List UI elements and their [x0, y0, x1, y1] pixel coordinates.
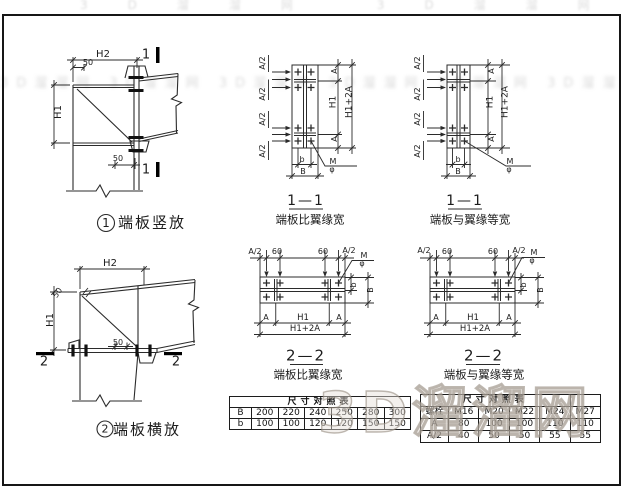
drawing-sheet: 3D溜溜网 3D溜溜网 3D溜溜网 3D溜溜网 3D溜溜网 3D溜溜网 3D溜溜… — [0, 0, 624, 500]
cell-A2-5: 55 — [570, 431, 600, 443]
section-1-1-wide-subtitle: 端板比翼缘宽 — [276, 214, 345, 226]
dim-label-B: B — [455, 168, 461, 176]
dim-label-a: A — [433, 314, 438, 322]
detail-1-linework — [66, 66, 182, 197]
cell-A2-3: 50 — [509, 431, 539, 443]
cell-A-5: 110 — [570, 419, 600, 431]
section-mark-1-bottom: 1 — [142, 164, 150, 177]
dim-label-h1-2a: H1+2A — [346, 86, 355, 118]
cell-b-4: 120 — [331, 419, 358, 430]
cell-b-3: 120 — [305, 419, 332, 430]
dim-label-h1: H1 — [46, 313, 56, 327]
cell-bolt-1: M16 — [449, 407, 479, 419]
dim-label-a-half: A/2 — [417, 247, 430, 255]
section-mark-2-left: 2 — [40, 356, 48, 369]
cell-A2-1: 40 — [449, 431, 479, 443]
section-cut-bar-1-top — [156, 47, 160, 63]
dim-label-a-half: A/2 — [414, 87, 422, 100]
detail-2-caption: 端板横放 — [113, 423, 181, 438]
dim-label-h1-2a: H1+2A — [502, 86, 511, 118]
dim-label-a-half: A/2 — [342, 247, 355, 255]
section-1-1-equal-title: 1—1 — [446, 194, 484, 208]
bolt-label-dia: φ — [506, 166, 511, 174]
dim-label-h1-2a: H1+2A — [290, 325, 320, 334]
dim-label-a: A — [331, 136, 339, 141]
dim-label-B: B — [300, 168, 306, 176]
dim-label-60: 60 — [318, 248, 328, 256]
dim-label-a-half: A/2 — [414, 56, 422, 69]
cell-bolt-5: M27 — [570, 407, 600, 419]
cell-bolt-3: M22 — [509, 407, 539, 419]
detail-1-caption: 端板竖放 — [118, 216, 186, 231]
size-table: 尺寸对照表 B 200 220 240 250 280 300 b 100 10… — [229, 396, 411, 430]
dim-label-h1: H1 — [297, 314, 309, 323]
dim-label-a-half: A/2 — [414, 112, 422, 125]
dim-label-b: b — [350, 282, 358, 287]
cell-b-2: 100 — [278, 419, 305, 430]
cell-B-6: 300 — [384, 408, 411, 419]
dim-label-a-half: A/2 — [259, 87, 267, 100]
cell-bolt-2: M20 — [479, 407, 509, 419]
cell-B-5: 280 — [358, 408, 385, 419]
row-label-B: B — [230, 408, 252, 419]
dim-label-50: 50 — [113, 155, 123, 163]
section-cut-bar-1-bottom — [156, 162, 160, 177]
table-row: A 80 100 100 110 110 — [421, 419, 601, 431]
dim-label-50: 50 — [83, 59, 93, 67]
table-row: B 200 220 240 250 280 300 — [230, 408, 411, 419]
dim-label-60: 60 — [488, 248, 498, 256]
detail-2-linework — [68, 280, 199, 407]
table-row: b 100 100 120 120 150 150 — [230, 419, 411, 430]
cell-A-2: 100 — [479, 419, 509, 431]
cell-b-6: 150 — [384, 419, 411, 430]
dim-label-50: 50 — [113, 339, 123, 347]
section-mark-2-right: 2 — [172, 356, 180, 369]
dim-label-h2: H2 — [96, 50, 110, 60]
row-label-A: A — [421, 419, 449, 431]
bolt-table-empty-cell — [570, 395, 600, 407]
cell-A2-4: 55 — [540, 431, 570, 443]
cell-B-3: 240 — [305, 408, 332, 419]
detail-2-number: 2 — [102, 424, 109, 435]
cell-A2-2: 50 — [479, 431, 509, 443]
detail-1-dimensions — [51, 47, 160, 232]
cell-A-3: 100 — [509, 419, 539, 431]
dim-label-a-half: A/2 — [512, 247, 525, 255]
section-2-2-wide-subtitle: 端板比翼缘宽 — [274, 369, 343, 381]
dim-label-B: B — [537, 287, 545, 293]
cell-B-4: 250 — [331, 408, 358, 419]
row-label-A-half: A/2 — [421, 431, 449, 443]
bolt-label-dia: φ — [329, 166, 334, 174]
size-table-title: 尺寸对照表 — [230, 397, 411, 408]
dim-label-a: A — [506, 314, 511, 322]
section-2-2-equal-title: 2—2 — [464, 349, 504, 364]
row-label-bolt: 螺栓 — [421, 407, 449, 419]
dim-label-60: 60 — [272, 248, 282, 256]
dim-label-h1: H1 — [487, 96, 496, 109]
cell-A-1: 80 — [449, 419, 479, 431]
dim-label-60: 60 — [442, 248, 452, 256]
dim-label-a-half: A/2 — [414, 144, 422, 157]
section-1-1-equal-subtitle: 端板与翼缘等宽 — [430, 214, 511, 226]
cell-bolt-4: M24 — [540, 407, 570, 419]
section-mark-1-top: 1 — [142, 49, 150, 62]
dim-label-a-half: A/2 — [248, 248, 261, 256]
table-row: A/2 40 50 50 55 55 — [421, 431, 601, 443]
cell-B-1: 200 — [252, 408, 279, 419]
section-2-2-equal-subtitle: 端板与翼缘等宽 — [444, 369, 525, 381]
cell-A-4: 110 — [540, 419, 570, 431]
dim-label-a: A — [263, 314, 268, 322]
dim-label-b: b — [520, 282, 528, 287]
bolt-table: 尺寸对照表 螺栓 M16 M20 M22 M24 M27 A 80 100 10… — [420, 394, 601, 443]
section-1-1-wide-title: 1—1 — [287, 194, 325, 208]
section-1-1-wide-linework — [269, 55, 358, 209]
bolt-label-dia: φ — [529, 257, 534, 265]
dim-label-a-half: A/2 — [259, 56, 267, 69]
dim-label-a: A — [488, 68, 496, 73]
dim-label-a-half: A/2 — [259, 112, 267, 125]
section-2-2-wide-title: 2—2 — [286, 349, 326, 364]
dim-label-h1: H1 — [330, 96, 339, 109]
dim-label-h1: H1 — [54, 105, 64, 119]
dim-label-a: A — [336, 314, 341, 322]
cell-b-5: 150 — [358, 419, 385, 430]
dim-label-b: b — [299, 156, 304, 164]
cell-b-1: 100 — [252, 419, 279, 430]
bolt-label-dia: φ — [359, 260, 364, 268]
detail-1-number: 1 — [102, 217, 110, 229]
row-label-b: b — [230, 419, 252, 430]
dim-label-B: B — [367, 287, 375, 293]
dim-label-a: A — [488, 136, 496, 141]
table-row: 尺寸对照表 — [421, 395, 601, 407]
table-row: 尺寸对照表 — [230, 397, 411, 408]
dim-label-a-half: A/2 — [259, 144, 267, 157]
dim-label-b: b — [455, 156, 460, 164]
dim-label-h2: H2 — [103, 259, 117, 269]
table-row: 螺栓 M16 M20 M22 M24 M27 — [421, 407, 601, 419]
bolt-table-title: 尺寸对照表 — [421, 395, 571, 407]
section-1-1-equal-linework — [424, 55, 532, 209]
cell-B-2: 220 — [278, 408, 305, 419]
dim-label-h1-2a: H1+2A — [460, 325, 490, 334]
dim-label-h1: H1 — [467, 314, 479, 323]
dim-label-a: A — [331, 68, 339, 73]
